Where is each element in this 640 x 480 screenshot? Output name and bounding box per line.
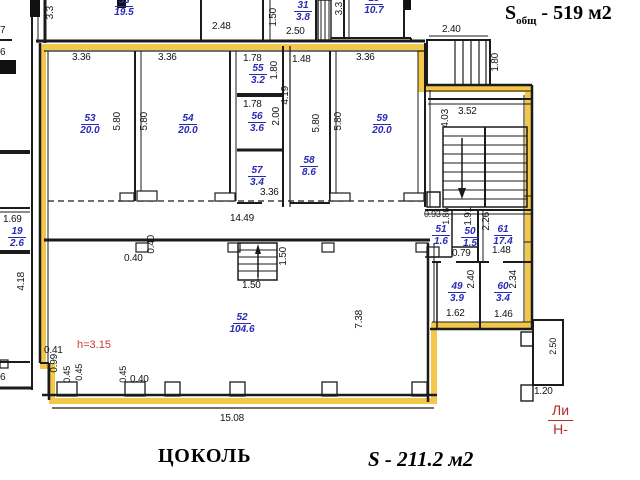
stairs-basement-center	[238, 243, 277, 280]
room-label-52: 52104.6	[222, 312, 262, 335]
room-label-54: 5420.0	[168, 113, 208, 136]
dim-label: 1.48	[292, 55, 311, 65]
dim-label: 1.46	[494, 310, 513, 320]
dim-label: 7.38	[355, 310, 365, 329]
dim-label: 2.48	[212, 22, 231, 32]
room-label-19: 192.6	[0, 226, 37, 249]
dim-label: 3.3	[335, 2, 345, 15]
dim-label: 1.69	[3, 215, 22, 225]
dim-label: 4.19	[281, 86, 291, 105]
dim-label: 3.36	[356, 53, 375, 63]
dim-label: 0.45	[119, 366, 128, 383]
dim-label: 1.62	[446, 309, 465, 319]
room-label-58: 588.6	[289, 155, 329, 178]
dim-label: 14.49	[230, 214, 254, 224]
unit-area-label: S - 211.2 м2	[368, 447, 473, 472]
room-label-57: 573.4	[237, 165, 277, 188]
dim-label: 1.50	[279, 247, 289, 266]
dim-label: 0.93	[424, 210, 441, 219]
dim-label: 1.50	[242, 281, 261, 291]
dim-label: 7	[0, 26, 5, 36]
dim-label: 2.40	[442, 25, 461, 35]
dim-label: 0.40	[130, 375, 149, 385]
dim-label: 15.08	[220, 414, 244, 424]
dim-label: 2.34	[509, 270, 519, 289]
dim-label: 6	[0, 48, 5, 58]
dim-label: 0.99	[50, 354, 60, 373]
dim-label: 5.80	[312, 114, 322, 133]
dim-label: 5.80	[113, 112, 123, 131]
height-note: h=3.15	[77, 339, 111, 351]
dim-label: 2.26	[482, 212, 492, 231]
dim-label: 4.03	[441, 109, 451, 128]
room-label-53: 5320.0	[70, 113, 110, 136]
floor-title: ЦОКОЛЬ	[158, 445, 252, 468]
floorplan-canvas: Sобщ - 519 м2 ЦОКОЛЬ S - 211.2 м2 h=3.15…	[0, 0, 640, 480]
dim-label: 1.78	[243, 100, 262, 110]
dim-label: 0.45	[63, 366, 72, 383]
dim-label: 1.86	[442, 208, 451, 225]
room-label-33: 3319.5	[104, 0, 144, 18]
room-label-31: 313.8	[283, 0, 323, 23]
room-label-59: 5920.0	[362, 113, 402, 136]
stamp-label: ЛиН-	[548, 402, 573, 438]
dim-label: 5.80	[140, 112, 150, 131]
dim-label: 1.78	[243, 54, 262, 64]
dim-label: 2.50	[549, 338, 558, 355]
dim-label: 1.80	[270, 61, 280, 80]
dim-label: 0.45	[75, 364, 84, 381]
dim-label: 2.50	[286, 27, 305, 37]
dim-label: 3.36	[260, 188, 279, 198]
stairs-entrance	[427, 36, 490, 85]
dim-label: 1.50	[269, 8, 279, 27]
total-area-label: Sобщ - 519 м2	[505, 2, 612, 27]
dim-label: 6	[0, 373, 5, 383]
dim-label: 3.36	[72, 53, 91, 63]
dim-label: 3.52	[458, 107, 477, 117]
dim-label: 0.40	[147, 235, 157, 254]
dim-label: 1.91	[464, 207, 474, 226]
dim-label: 3.36	[158, 53, 177, 63]
dim-label: 2.40	[467, 270, 477, 289]
dim-label: 2.00	[272, 107, 282, 126]
stair-down-arrow	[458, 188, 466, 199]
dim-label: 0.40	[124, 254, 143, 264]
dim-label: 0.79	[452, 249, 471, 259]
dim-label: 5.80	[334, 112, 344, 131]
dim-label: 1.48	[492, 246, 511, 256]
dim-label: 1.20	[534, 387, 553, 397]
dim-label: 4.18	[17, 272, 27, 291]
dim-label: 3.3	[46, 6, 56, 19]
floorplan-drawing	[0, 0, 640, 480]
stairs-main	[427, 127, 527, 207]
dim-label: 1.80	[491, 53, 501, 72]
stair-up-arrow	[255, 244, 261, 254]
room-label-15: 1510.7	[354, 0, 394, 16]
